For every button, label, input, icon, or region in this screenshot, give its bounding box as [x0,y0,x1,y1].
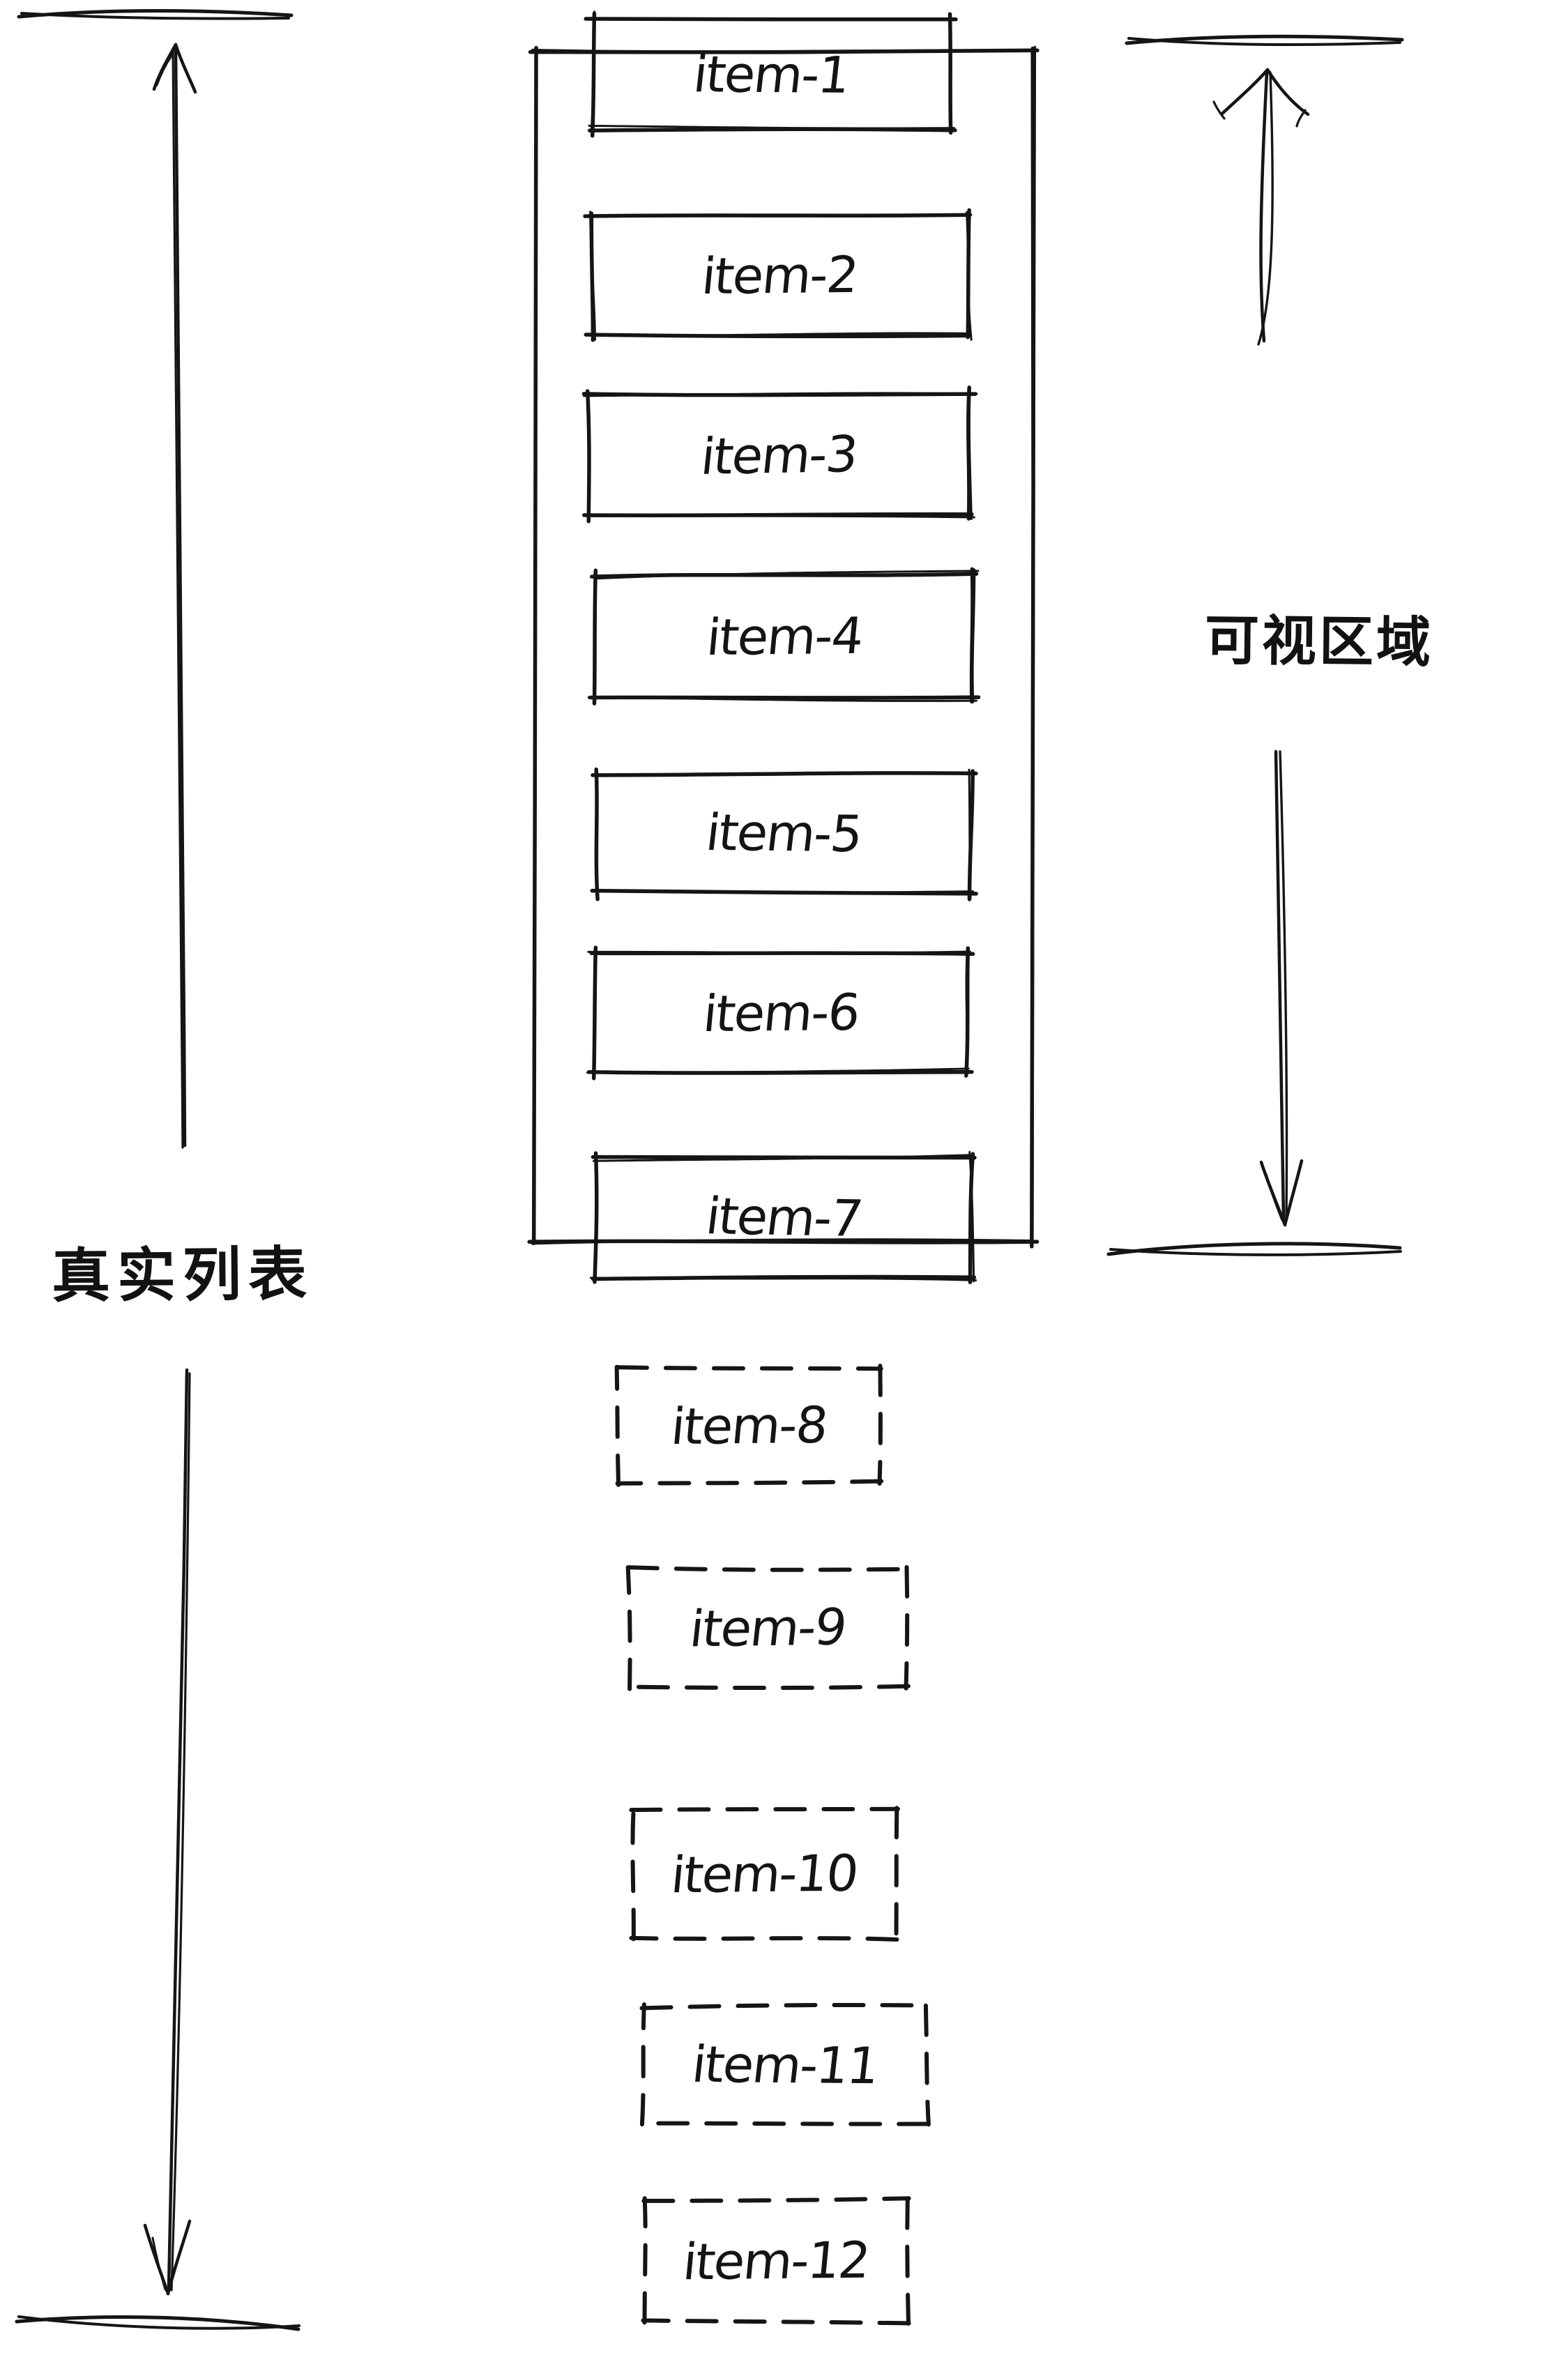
viewport-bottom-cap-line [1109,1244,1401,1255]
viewport-up-arrow [1214,70,1308,344]
viewport-label: 可视区域 [1193,597,1445,678]
real-list-down-arrow [145,1370,190,2294]
list-item-label: item-10 [669,1843,860,1904]
list-item: item-7 [596,1157,971,1277]
list-item: item-1 [593,20,950,129]
list-item-label: item-1 [690,45,852,105]
list-item-virtual: item-10 [633,1809,896,1938]
list-item-label: item-12 [680,2230,871,2291]
list-item-label: item-3 [699,425,860,486]
list-item: item-5 [596,774,971,892]
list-item-label: item-8 [669,1395,830,1455]
list-item-label: item-9 [687,1597,849,1658]
list-item: item-6 [594,954,968,1072]
real-list-top-cap-line [19,11,291,19]
real-list-up-arrow [154,45,195,1148]
list-item: item-4 [596,575,973,697]
list-item-virtual: item-9 [630,1569,906,1687]
real-list-bottom-cap-line [17,2317,299,2329]
real-list-label: 真实列表 [43,1227,322,1313]
list-item-label: item-7 [703,1187,865,1248]
list-item-virtual: item-12 [645,2200,908,2322]
list-item-label: item-2 [699,245,860,305]
list-item-label: item-5 [703,803,865,863]
list-item-label: item-11 [689,2034,881,2094]
virtual-list-diagram: item-1 item-2 item-3 item-4 item-5 item-… [0,0,1568,2362]
list-item-virtual: item-11 [643,2006,927,2123]
list-item-label: item-6 [701,983,862,1043]
list-item-label: item-4 [704,606,865,666]
viewport-down-arrow [1261,752,1302,1225]
list-item: item-2 [591,216,968,335]
list-item: item-3 [589,394,969,516]
viewport-top-cap-line [1127,36,1402,45]
list-item-virtual: item-8 [618,1368,880,1483]
real-list-annotation [17,11,299,2330]
